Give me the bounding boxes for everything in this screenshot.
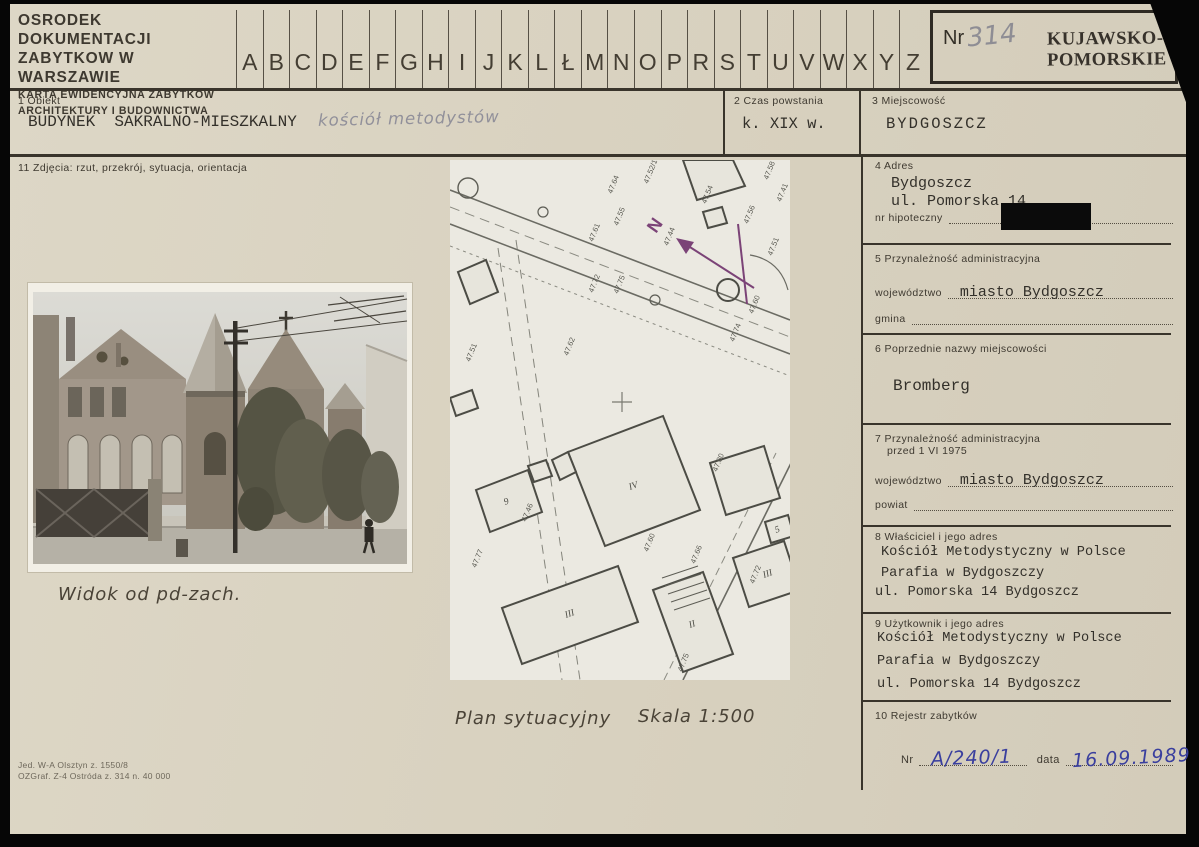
alphabet-cell: P: [661, 10, 688, 88]
field4-town: Bydgoszcz: [891, 175, 1173, 192]
field5-commune-line: [912, 313, 1173, 325]
field10-date-line: 16.09.1989: [1066, 742, 1173, 766]
stamp-line2: POMORSKIE: [1047, 49, 1167, 70]
field10-date-handwritten: 16.09.1989: [1071, 744, 1191, 772]
alphabet-cell: Ł: [554, 10, 581, 88]
site-plan-map: N 47.6447.5547.52/1447.6147.4447.5447.56…: [450, 160, 790, 680]
alphabet-cell: M: [581, 10, 608, 88]
field8-line1: Kościół Metodystyczny w Polsce: [881, 545, 1173, 560]
right-column: 4 Adres Bydgoszcz ul. Pomorska 14 nr hip…: [863, 156, 1186, 834]
field9-line1: Kościół Metodystyczny w Polsce: [877, 631, 1173, 646]
field4-address: 4 Adres Bydgoszcz ul. Pomorska 14 nr hip…: [863, 156, 1179, 243]
alphabet-cell: F: [369, 10, 396, 88]
field7-county-label: powiat: [875, 499, 908, 511]
main-area: 11 Zdjęcia: rzut, przekrój, sytuacja, or…: [10, 156, 1186, 834]
alphabet-cell: W: [820, 10, 847, 88]
field5-voivodeship-label: województwo: [875, 287, 942, 299]
field9-label: 9 Użytkownik i jego adres: [875, 618, 1173, 630]
alphabet-cell: K: [501, 10, 528, 88]
scanned-card-background: OSRODEK DOKUMENTACJI ZABYTKOW W WARSZAWI…: [0, 0, 1199, 847]
field4-mortgage-line: [949, 212, 1173, 224]
alphabet-cell: T: [740, 10, 767, 88]
plan-caption-scale: Skala 1:500: [638, 706, 756, 727]
alphabet-cell: Y: [873, 10, 900, 88]
field8-line2: Parafia w Bydgoszczy: [881, 566, 1173, 581]
field8-line3: ul. Pomorska 14 Bydgoszcz: [875, 585, 1173, 600]
alphabet-cell: B: [263, 10, 290, 88]
site-plan: N 47.6447.5547.52/1447.6147.4447.5447.56…: [450, 160, 790, 680]
field6-label: 6 Poprzednie nazwy miejscowości: [875, 343, 1173, 355]
building-photo: [28, 283, 412, 572]
alphabet-cell: R: [687, 10, 714, 88]
fields-row-1: 1 Obiekt BUDYNEK SAKRALNO-MIESZKALNY koś…: [10, 91, 1186, 154]
field5-administration: 5 Przynależność administracyjna wojewódz…: [863, 245, 1179, 333]
alphabet-cell: L: [528, 10, 555, 88]
field1-object-handwritten: kościół metodystów: [318, 107, 500, 130]
alphabet-cell: V: [793, 10, 820, 88]
alphabet-cell: C: [289, 10, 316, 88]
field6-value: Bromberg: [893, 377, 1173, 395]
alphabet-cell: A: [236, 10, 263, 88]
field6-previous-names: 6 Poprzednie nazwy miejscowości Bromberg: [863, 335, 1179, 423]
field11-label: 11 Zdjęcia: rzut, przekrój, sytuacja, or…: [18, 162, 247, 174]
field1-2-divider: [723, 91, 725, 154]
issuer-name-line1: OSRODEK DOKUMENTACJI: [18, 11, 236, 49]
field1-label: 1 Obiekt: [18, 95, 60, 107]
field3-town-typed: BYDGOSZCZ: [886, 115, 988, 133]
field5-voivodeship-value: miasto Bydgoszcz: [960, 284, 1104, 301]
imprint-line1: Jed. W-A Olsztyn z. 1550/8: [18, 760, 171, 771]
field3-label: 3 Miejscowość: [872, 95, 945, 107]
field9-line2: Parafia w Bydgoszczy: [877, 654, 1173, 669]
plan-caption-title: Plan sytuacyjny: [455, 708, 611, 729]
alphabet-cell: Z: [899, 10, 926, 88]
card-number-handwritten: 314: [966, 18, 1019, 53]
alphabet-strip: ABCDEFGHIJKLŁMNOPRSTUVWXYZ: [236, 10, 926, 88]
field5-commune-label: gmina: [875, 313, 906, 325]
field7-label-line1: 7 Przynależność administracyjna: [875, 433, 1173, 445]
alphabet-cell: J: [475, 10, 502, 88]
field10-date-label: data: [1037, 754, 1060, 766]
field7-administration-1975: 7 Przynależność administracyjna przed 1 …: [863, 425, 1179, 525]
field4-label: 4 Adres: [875, 160, 1173, 172]
evidence-card: OSRODEK DOKUMENTACJI ZABYTKOW W WARSZAWI…: [10, 4, 1186, 834]
field10-nr-handwritten: A/240/1: [931, 746, 1013, 771]
field7-voivodeship-line: miasto Bydgoszcz: [948, 467, 1173, 487]
alphabet-cell: O: [634, 10, 661, 88]
field2-date-typed: k. XIX w.: [742, 115, 826, 133]
issuer-name-line2: ZABYTKOW W WARSZAWIE: [18, 49, 236, 87]
voivodeship-stamp: KUJAWSKO- POMORSKIE: [1047, 28, 1167, 71]
field2-label: 2 Czas powstania: [734, 95, 823, 107]
alphabet-cell: G: [395, 10, 422, 88]
field4-redaction-box: [1001, 203, 1091, 230]
field7-voivodeship-label: województwo: [875, 475, 942, 487]
field4-mortgage-label: nr hipoteczny: [875, 212, 943, 224]
alphabet-cell: D: [316, 10, 343, 88]
field5-label: 5 Przynależność administracyjna: [875, 253, 1173, 265]
alphabet-cell: U: [767, 10, 794, 88]
alphabet-cell: I: [448, 10, 475, 88]
card-number-box: Nr 314 KUJAWSKO- POMORSKIE: [930, 10, 1178, 84]
field10-nr-label: Nr: [901, 754, 913, 766]
imprint-line2: OZGraf. Z-4 Ostróda z. 314 n. 40 000: [18, 771, 171, 782]
alphabet-cell: H: [422, 10, 449, 88]
building-photo-image: [28, 283, 412, 572]
field5-voivodeship-line: miasto Bydgoszcz: [948, 279, 1173, 299]
stamp-line1: KUJAWSKO-: [1047, 28, 1164, 49]
alphabet-cell: E: [342, 10, 369, 88]
field9-line3: ul. Pomorska 14 Bydgoszcz: [877, 677, 1173, 692]
field1-object-typed: BUDYNEK SAKRALNO-MIESZKALNY: [28, 113, 297, 131]
field8-owner: 8 Właściciel i jego adres Kościół Metody…: [863, 527, 1179, 612]
field8-label: 8 Właściciel i jego adres: [875, 531, 1173, 543]
field10-register: 10 Rejestr zabytków Nr A/240/1 data 16.0…: [863, 702, 1179, 792]
alphabet-cell: S: [714, 10, 741, 88]
field7-label-line2: przed 1 VI 1975: [887, 445, 1173, 457]
field10-nr-line: A/240/1: [919, 742, 1026, 766]
field9-user: 9 Użytkownik i jego adres Kościół Metody…: [863, 614, 1179, 700]
field7-voivodeship-value: miasto Bydgoszcz: [960, 472, 1104, 489]
field10-label: 10 Rejestr zabytków: [875, 710, 1173, 722]
alphabet-cell: X: [846, 10, 873, 88]
field2-3-divider: [859, 91, 861, 154]
card-number-label: Nr: [943, 27, 964, 50]
field7-county-line: [914, 499, 1173, 511]
print-imprint: Jed. W-A Olsztyn z. 1550/8 OZGraf. Z-4 O…: [18, 760, 171, 782]
alphabet-cell: N: [607, 10, 634, 88]
photo-caption: Widok od pd-zach.: [58, 584, 241, 605]
